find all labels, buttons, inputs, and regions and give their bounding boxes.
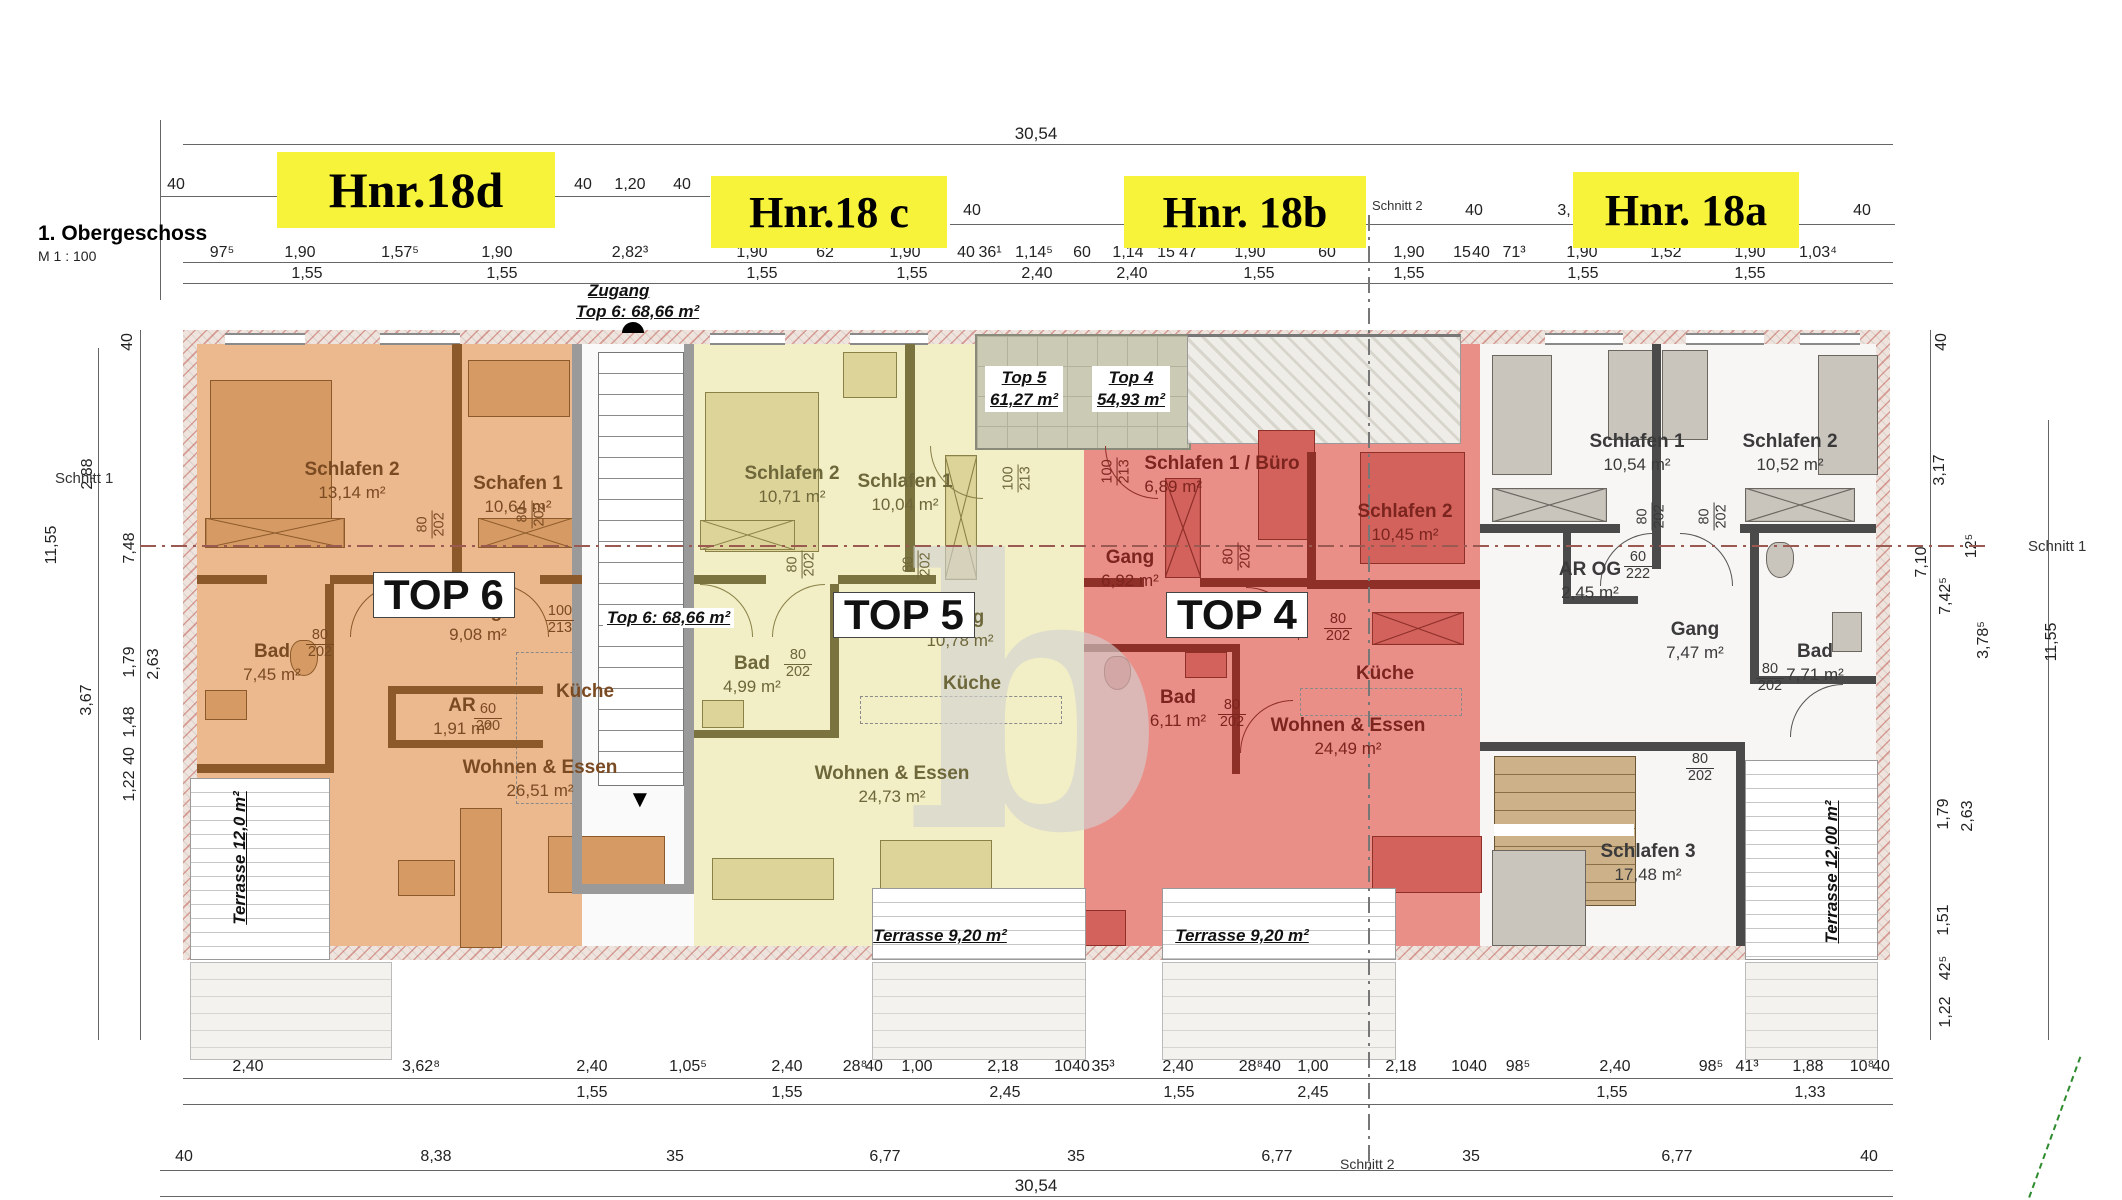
dim-label: 40: [957, 244, 975, 262]
dim-label: 2,40: [576, 1058, 607, 1076]
dim-label: 97⁵: [210, 244, 234, 262]
dim-label: 1,55: [1243, 265, 1274, 283]
dim-label: 1,22: [1937, 996, 1955, 1027]
wardrobe: [205, 518, 345, 548]
sofa: [460, 808, 502, 948]
dim-label: 98⁵: [1506, 1058, 1530, 1076]
dim-label: 1,55: [486, 265, 517, 283]
dim-label: 2,40: [1162, 1058, 1193, 1076]
window: [1686, 333, 1764, 345]
dim-label: 35³: [1091, 1058, 1114, 1076]
dim-label: 3,17: [1931, 454, 1949, 485]
dim-label: 1,00: [901, 1058, 932, 1076]
dim-label: 3,67: [78, 684, 96, 715]
dim-line: [160, 120, 161, 300]
dim-label: 40: [1853, 202, 1871, 220]
dim-line: [140, 330, 141, 1040]
door-tag: 60222: [1618, 550, 1658, 583]
door-tag: 80202: [1680, 752, 1720, 785]
door-tag: 80202: [1750, 662, 1790, 695]
dim-label: 1,55: [1596, 1084, 1627, 1102]
door-tag: 60200: [468, 702, 508, 735]
dim-label: 40: [175, 1148, 193, 1166]
stair-landing: [1494, 824, 1634, 836]
dim-label: 2,40: [1599, 1058, 1630, 1076]
room-label: Wohnen & Essen24,49 m²: [1271, 714, 1426, 759]
wall: [572, 884, 694, 894]
toilet: [1766, 542, 1794, 578]
dim-label: 42⁵: [1937, 956, 1955, 980]
sink: [1185, 652, 1227, 678]
door-tag: 80202: [786, 544, 819, 584]
dim-label: 98⁵: [1699, 1058, 1723, 1076]
entrance-marker: [622, 322, 644, 333]
dim-line: [183, 1078, 1893, 1079]
dim-line: [160, 1196, 1893, 1197]
room-label: Schlafen 213,14 m²: [304, 458, 399, 503]
dim-label: 1,55: [291, 265, 322, 283]
dim-label: 40: [1472, 244, 1490, 262]
dim-label: 35: [666, 1148, 684, 1166]
window: [710, 333, 785, 345]
window: [1545, 333, 1623, 345]
dim-label: 40: [167, 176, 185, 194]
dim-label: 1,57⁵: [381, 244, 419, 262]
wall: [197, 764, 334, 773]
section1-label-right: Schnitt 1: [2028, 538, 2086, 555]
sink: [205, 690, 247, 720]
dim-label: 40: [1933, 333, 1951, 351]
dim-label: 1,90: [481, 244, 512, 262]
terrace-18a-label: Terrasse 12,00 m²: [1822, 800, 1842, 943]
dim-label: 6,77: [869, 1148, 900, 1166]
floor-plan-sheet: 1. Obergeschoss M 1 : 100 30,54 Hnr.18d …: [0, 0, 2122, 1200]
dim-top-total: 30,54: [1015, 124, 1058, 144]
dim-bottom-total: 30,54: [1015, 1176, 1058, 1196]
loggia-top5-label: Top 5 61,27 m²: [985, 366, 1063, 412]
door-tag: 80202: [1698, 496, 1731, 536]
wall: [388, 686, 543, 694]
loggia-top4-area: 54,93 m²: [1097, 389, 1165, 411]
dim-label: 40: [1872, 1058, 1890, 1076]
door-tag: 80202: [516, 494, 549, 534]
dim-label: 2,40: [1021, 265, 1052, 283]
door-tag: 80202: [1212, 698, 1252, 731]
dim-label: 40: [119, 333, 137, 351]
room-label: Küche: [556, 680, 614, 704]
wardrobe: [1745, 488, 1855, 522]
dim-label: 2,63: [1959, 800, 1977, 831]
dim-label: 40: [1469, 1058, 1487, 1076]
dim-label: 40: [865, 1058, 883, 1076]
dim-label: 10⁸: [1850, 1058, 1875, 1076]
wood-deck: [190, 962, 392, 1060]
wall: [1480, 742, 1745, 751]
wall: [1307, 580, 1480, 589]
dim-label: 40: [574, 176, 592, 194]
room-label: Schlafen 210,52 m²: [1742, 430, 1837, 475]
dim-label: 11,55: [2043, 623, 2061, 662]
dim-line: [98, 348, 99, 1040]
window: [850, 333, 928, 345]
dim-label: 2,40: [1116, 265, 1147, 283]
top6-area-label: Top 6: 68,66 m²: [603, 608, 734, 628]
terrace-top6-label: Terrasse 12,0 m²: [230, 791, 250, 925]
dim-label: 60: [1073, 244, 1091, 262]
dim-label: 1,05⁵: [669, 1058, 707, 1076]
dim-label: 10: [1054, 1058, 1072, 1076]
dim-label: 11,55: [43, 526, 61, 565]
stair-direction-arrow: ▼: [628, 786, 652, 814]
door-tag: 80202: [416, 504, 449, 544]
room-label: Gang7,47 m²: [1666, 618, 1724, 663]
section1-label-left: Schnitt 1: [55, 470, 113, 487]
title-block: 1. Obergeschoss M 1 : 100: [38, 222, 207, 264]
room-label: Küche: [1356, 662, 1414, 686]
dim-line: [183, 262, 1893, 263]
dim-label: 1,55: [1163, 1084, 1194, 1102]
dim-label: 1,03⁴: [1799, 244, 1837, 262]
dim-label: 6,77: [1661, 1148, 1692, 1166]
room-label: Gang6,92 m²: [1101, 546, 1159, 591]
section1-line: [140, 545, 1990, 547]
room-label: Wohnen & Essen26,51 m²: [463, 756, 618, 801]
section2-top-marker: Schnitt 2: [1372, 198, 1423, 213]
dim-label: 2,18: [1385, 1058, 1416, 1076]
wall: [452, 344, 462, 572]
door-tag: 80202: [1222, 536, 1255, 576]
wall: [1307, 452, 1316, 582]
wall: [1736, 742, 1745, 946]
terrace-18a: [1745, 760, 1878, 960]
wall: [325, 584, 334, 769]
door-tag: 80202: [778, 648, 818, 681]
wall: [1750, 533, 1759, 683]
window: [1800, 333, 1860, 345]
loggia-top5-name: Top 5: [990, 367, 1058, 389]
kitchen-counter: [1300, 688, 1462, 716]
wall: [197, 575, 267, 584]
floor-title: 1. Obergeschoss: [38, 222, 207, 246]
dim-label: 40: [1465, 202, 1483, 220]
dim-label: 1,55: [896, 265, 927, 283]
dim-label: 1,55: [1734, 265, 1765, 283]
desk: [843, 352, 897, 398]
door-tag: 80202: [1636, 496, 1669, 536]
zugang-label: Zugang: [588, 281, 649, 301]
terrace-top4-label: Terrasse 9,20 m²: [1175, 926, 1309, 946]
wall: [1200, 578, 1310, 587]
loggia-top5-area: 61,27 m²: [990, 389, 1058, 411]
bed: [1492, 850, 1586, 946]
wood-deck: [1162, 962, 1396, 1060]
scale-label: M 1 : 100: [38, 248, 207, 264]
label-hnr18c: Hnr.18 c: [711, 176, 947, 248]
dim-label: 40: [963, 202, 981, 220]
dim-label: 3,: [1557, 202, 1570, 220]
dim-label: 41³: [1735, 1058, 1758, 1076]
dim-label: 1,14⁵: [1015, 244, 1053, 262]
dim-line: [160, 1170, 1893, 1171]
dim-label: 15: [1453, 244, 1471, 262]
dim-label: 1,55: [576, 1084, 607, 1102]
room-label: Bad7,71 m²: [1786, 640, 1844, 685]
dim-line: [183, 283, 1893, 284]
section2-label-bottom: Schnitt 2: [1340, 1156, 1394, 1172]
wall: [540, 575, 582, 584]
wood-deck: [1745, 962, 1878, 1060]
dim-line: [183, 144, 1893, 145]
room-label: Bad4,99 m²: [723, 652, 781, 697]
dim-label: 2,40: [771, 1058, 802, 1076]
dim-label: 2,82³: [612, 244, 648, 262]
room-label: Schlafen 1 / Büro6,89 m²: [1144, 452, 1299, 497]
dim-label: 1,00: [1297, 1058, 1328, 1076]
dim-label: 1,79: [1935, 798, 1953, 829]
dim-label: 1,55: [1567, 265, 1598, 283]
wall: [1480, 524, 1620, 533]
room-label: Küche: [943, 672, 1001, 696]
dim-label: 1,22: [121, 770, 139, 801]
coffee-table: [398, 860, 455, 896]
room-label: Bad6,11 m²: [1150, 686, 1206, 731]
sofa: [712, 858, 834, 900]
dim-label: 1,20: [614, 176, 645, 194]
door-tag: 80202: [1318, 612, 1358, 645]
zugang-area-label: Top 6: 68,66 m²: [576, 302, 699, 322]
door-tag: 100213: [540, 604, 580, 637]
wall: [388, 740, 543, 748]
dim-label: 2,18: [987, 1058, 1018, 1076]
dim-label: 3,78⁵: [1975, 621, 1993, 659]
loggia-top4-label: Top 4 54,93 m²: [1092, 366, 1170, 412]
room-label: Schlafen 317,48 m²: [1600, 840, 1695, 885]
label-hnr18d: Hnr.18d: [277, 152, 555, 228]
terrace-top4: [1162, 888, 1396, 960]
door-tag: 80202: [902, 544, 935, 584]
dim-label: 1,33: [1794, 1084, 1825, 1102]
dim-label: 7,10: [1913, 546, 1931, 577]
dining-table: [1372, 836, 1482, 893]
dim-label: 2,63: [145, 648, 163, 679]
wardrobe: [1492, 488, 1607, 522]
label-hnr18a: Hnr. 18a: [1573, 172, 1799, 248]
terrace-top5-label: Terrasse 9,20 m²: [873, 926, 1007, 946]
dim-label: 1,79: [121, 646, 139, 677]
wood-deck: [872, 962, 1086, 1060]
dim-label: 1,55: [771, 1084, 802, 1102]
room-label: Schlafen 110,04 m²: [857, 470, 952, 515]
desk: [1662, 350, 1708, 440]
desk: [468, 360, 570, 417]
dim-label: 40: [673, 176, 691, 194]
wall: [694, 575, 766, 584]
dim-label: 1,48: [121, 706, 139, 737]
label-hnr18b: Hnr. 18b: [1124, 176, 1366, 248]
dim-label: 2,45: [1297, 1084, 1328, 1102]
room-label: Wohnen & Essen24,73 m²: [815, 762, 970, 807]
dim-label: 1,90: [284, 244, 315, 262]
dim-label: 28⁸: [843, 1058, 868, 1076]
dim-label: 3,62⁸: [402, 1058, 440, 1076]
room-label: Schlafen 110,54 m²: [1589, 430, 1684, 475]
sink: [702, 700, 744, 728]
dim-line: [1930, 330, 1931, 1040]
dim-label: 35: [1462, 1148, 1480, 1166]
room-label: Bad7,45 m²: [243, 640, 301, 685]
door-tag: 80202: [300, 628, 340, 661]
door-tag: 100213: [1002, 458, 1035, 498]
dim-label: 35: [1067, 1148, 1085, 1166]
boundary-line: [2025, 1056, 2082, 1200]
dim-label: 36¹: [978, 244, 1001, 262]
dim-line: [183, 1104, 1893, 1105]
top6-tag: TOP 6: [373, 572, 515, 618]
room-label: Schlafen 210,71 m²: [744, 462, 839, 507]
dim-label: 1,51: [1935, 904, 1953, 935]
dim-label: 8,38: [420, 1148, 451, 1166]
terrace-top6: [190, 778, 330, 960]
wall: [388, 686, 396, 748]
room-label: AR OG2,45 m²: [1559, 558, 1621, 603]
loggia-top4-name: Top 4: [1097, 367, 1165, 389]
dim-label: 40: [121, 747, 139, 765]
dim-label: 71³: [1502, 244, 1525, 262]
dim-label: 28⁸: [1239, 1058, 1264, 1076]
door-tag: 100213: [1101, 451, 1134, 491]
dim-label: 6,77: [1261, 1148, 1292, 1166]
staircase: [598, 352, 684, 786]
window: [380, 333, 460, 345]
access-walkway: [1187, 334, 1461, 444]
bed: [1492, 355, 1552, 475]
top5-tag: TOP 5: [833, 592, 975, 638]
section2-line: [1368, 215, 1370, 1175]
wall: [694, 730, 839, 738]
dim-label: 40: [1263, 1058, 1281, 1076]
top4-tag: TOP 4: [1166, 592, 1308, 638]
dim-label: 1,88: [1792, 1058, 1823, 1076]
dim-label: 40: [1860, 1148, 1878, 1166]
dim-label: 1,90: [1393, 244, 1424, 262]
wardrobe: [1372, 612, 1464, 645]
dim-label: 40: [1072, 1058, 1090, 1076]
dim-label: 1,55: [1393, 265, 1424, 283]
dim-label: 7,42⁵: [1937, 577, 1955, 615]
wall: [1740, 524, 1876, 533]
dim-label: 1,55: [746, 265, 777, 283]
dim-label: 7,48: [121, 532, 139, 563]
room-label: Schlafen 210,45 m²: [1357, 500, 1452, 545]
dim-label: 10: [1451, 1058, 1469, 1076]
dim-label: 2,45: [989, 1084, 1020, 1102]
dim-label: 2,40: [232, 1058, 263, 1076]
window: [225, 333, 305, 345]
dim-line: [2048, 420, 2049, 1040]
desk: [1608, 350, 1654, 440]
